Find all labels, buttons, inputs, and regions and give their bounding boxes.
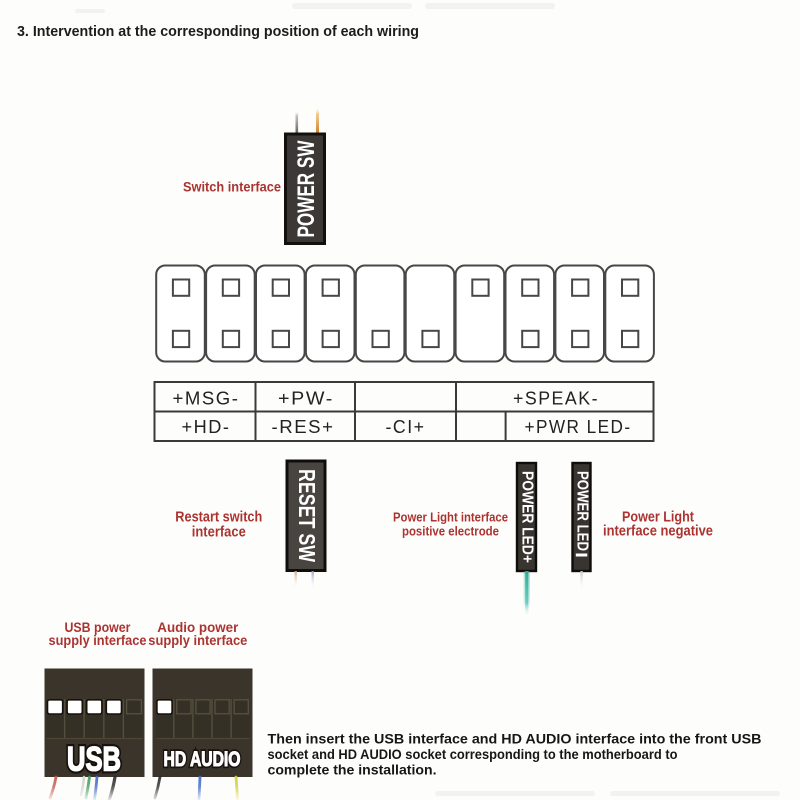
svg-text:+MSG-: +MSG- [173,389,240,409]
svg-text:3. Intervention at the corresp: 3. Intervention at the corresponding pos… [17,23,419,40]
svg-text:interface negative: interface negative [603,524,713,540]
svg-text:positive electrode: positive electrode [402,524,499,539]
svg-text:+SPEAK-: +SPEAK- [513,389,599,409]
svg-text:HD AUDIO: HD AUDIO [164,748,241,771]
svg-text:RESET SW: RESET SW [294,469,320,562]
svg-text:+HD-: +HD- [182,417,231,437]
svg-text:complete the installation.: complete the installation. [268,763,437,778]
svg-text:USB: USB [67,741,121,779]
svg-text:-CI+: -CI+ [386,417,426,437]
svg-text:+PWR LED-: +PWR LED- [525,417,632,437]
svg-text:supply interface: supply interface [148,633,247,648]
svg-text:socket and HD AUDIO socket cor: socket and HD AUDIO socket corresponding… [268,747,678,762]
svg-text:+PW-: +PW- [278,389,334,409]
svg-text:Then insert the USB interface: Then insert the USB interface and HD AUD… [268,732,762,747]
svg-text:Power Light interface: Power Light interface [393,510,508,525]
svg-text:supply interface: supply interface [49,633,147,648]
svg-text:interface: interface [192,524,246,541]
svg-text:POWER LED: POWER LED [573,471,590,551]
svg-text:POWER SW: POWER SW [293,140,320,237]
svg-text:Switch interface: Switch interface [183,179,281,195]
svg-text:POWER LED+: POWER LED+ [518,471,535,563]
svg-text:-RES+: -RES+ [272,417,335,437]
